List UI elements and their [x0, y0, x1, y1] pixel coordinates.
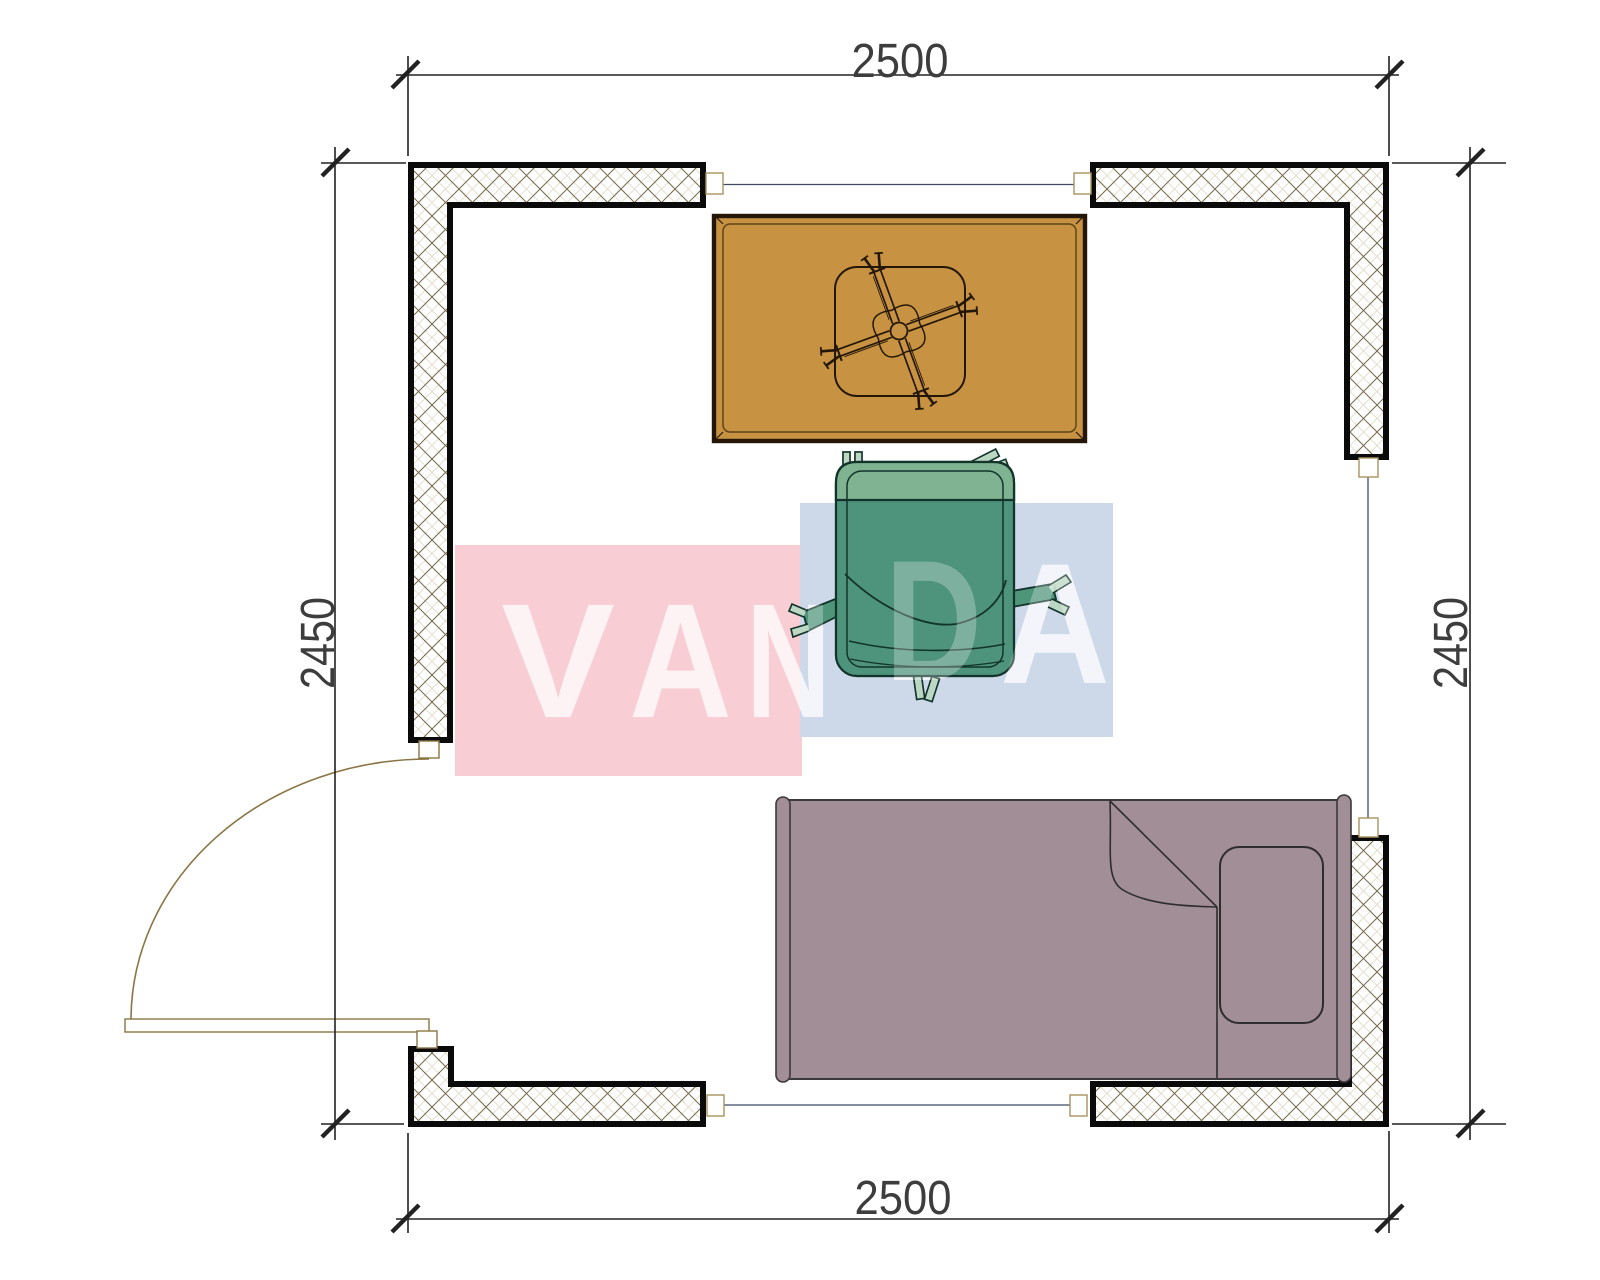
- svg-text:V: V: [501, 569, 615, 752]
- svg-text:2450: 2450: [292, 597, 345, 689]
- svg-text:2450: 2450: [1425, 597, 1478, 689]
- svg-text:N: N: [746, 569, 831, 752]
- svg-text:A: A: [629, 569, 732, 752]
- svg-text:A: A: [1000, 528, 1110, 720]
- svg-text:2500: 2500: [855, 1172, 952, 1225]
- svg-text:2500: 2500: [852, 35, 949, 88]
